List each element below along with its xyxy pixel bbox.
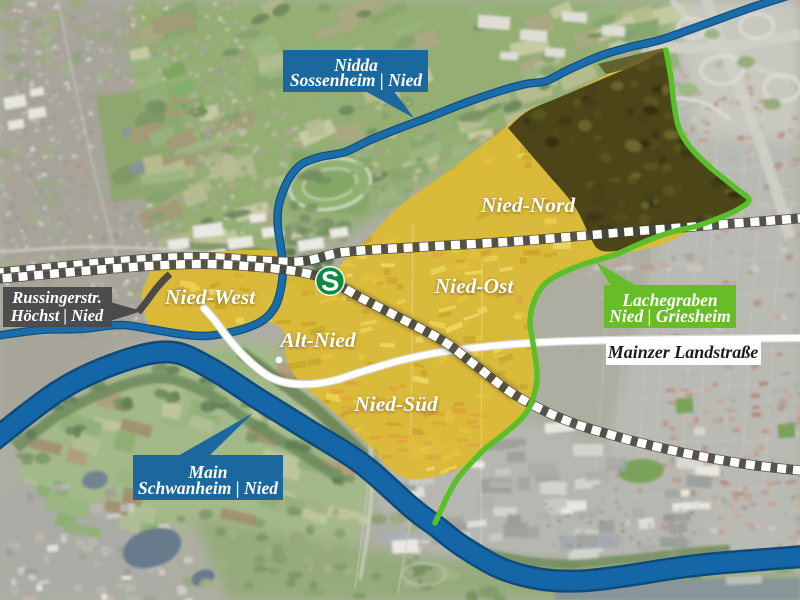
svg-text:Alt-Nied: Alt-Nied — [278, 328, 356, 352]
svg-text:Nied-Süd: Nied-Süd — [353, 392, 439, 416]
svg-text:Schwanheim | Nied: Schwanheim | Nied — [138, 478, 278, 498]
svg-text:Nied-Nord: Nied-Nord — [480, 193, 577, 217]
svg-text:Nied-Ost: Nied-Ost — [434, 274, 515, 298]
svg-text:Russingerstr.: Russingerstr. — [11, 288, 101, 307]
svg-text:Sossenheim | Nied: Sossenheim | Nied — [290, 70, 422, 90]
svg-text:Nied-West: Nied-West — [164, 285, 256, 309]
svg-text:Nied | Griesheim: Nied | Griesheim — [608, 306, 730, 326]
svg-text:Mainzer Landstraße: Mainzer Landstraße — [607, 342, 759, 362]
svg-text:S: S — [321, 266, 339, 297]
svg-text:Höchst | Nied: Höchst | Nied — [10, 306, 104, 325]
